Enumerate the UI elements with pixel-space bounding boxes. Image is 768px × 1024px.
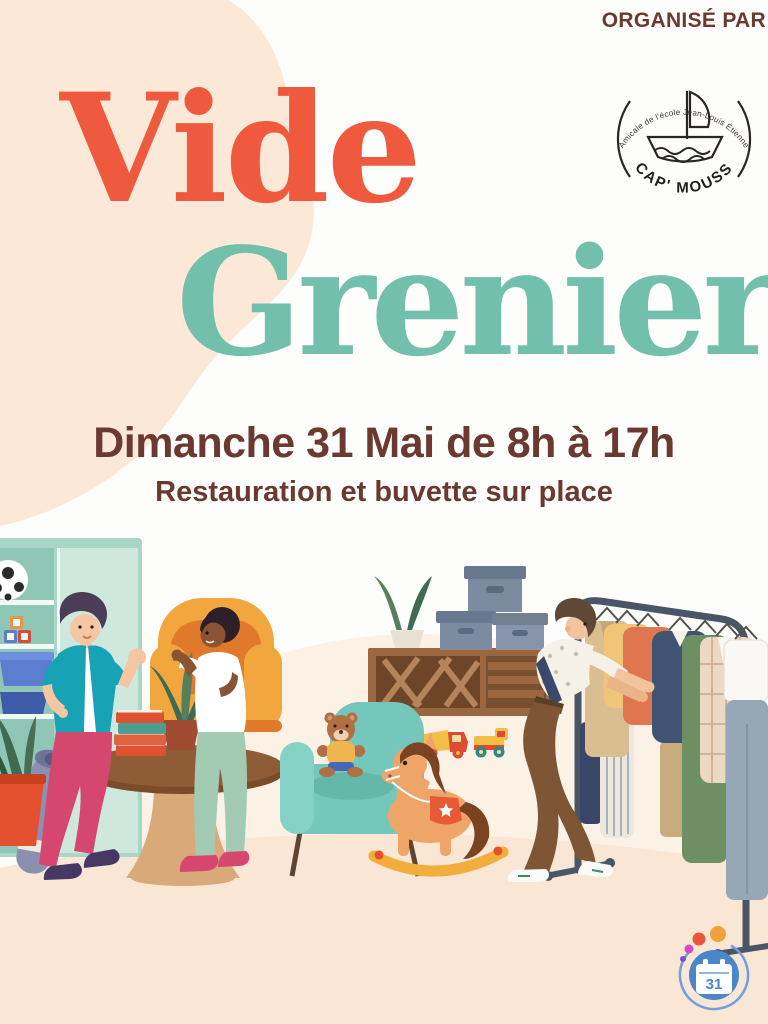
event-date: Dimanche 31 Mai de 8h à 17h xyxy=(0,420,768,467)
logo-school-text-curve: Amicale de l'école Jean-Louis Étienne xyxy=(617,108,751,150)
dot-red xyxy=(693,933,706,946)
book-stack xyxy=(114,710,166,756)
event-info: Restauration et buvette sur place xyxy=(0,477,768,509)
storage-boxes xyxy=(436,566,548,650)
dot-magenta xyxy=(685,945,694,954)
association-logo: Amicale de l'école Jean-Louis Étienne CA… xyxy=(600,53,768,221)
calendar-day: 31 xyxy=(706,976,723,993)
dot-orange xyxy=(710,926,726,942)
organizer-label: ORGANISÉ PAR xyxy=(602,9,766,33)
title-grenier: Grenier xyxy=(176,228,768,376)
dot-purple xyxy=(680,956,686,962)
title-vide: Vide xyxy=(60,74,419,224)
sailboat-icon xyxy=(648,91,722,162)
logo-name: CAP' MOUSS xyxy=(631,159,736,196)
calendar-date-icon: 31 xyxy=(652,918,768,1024)
